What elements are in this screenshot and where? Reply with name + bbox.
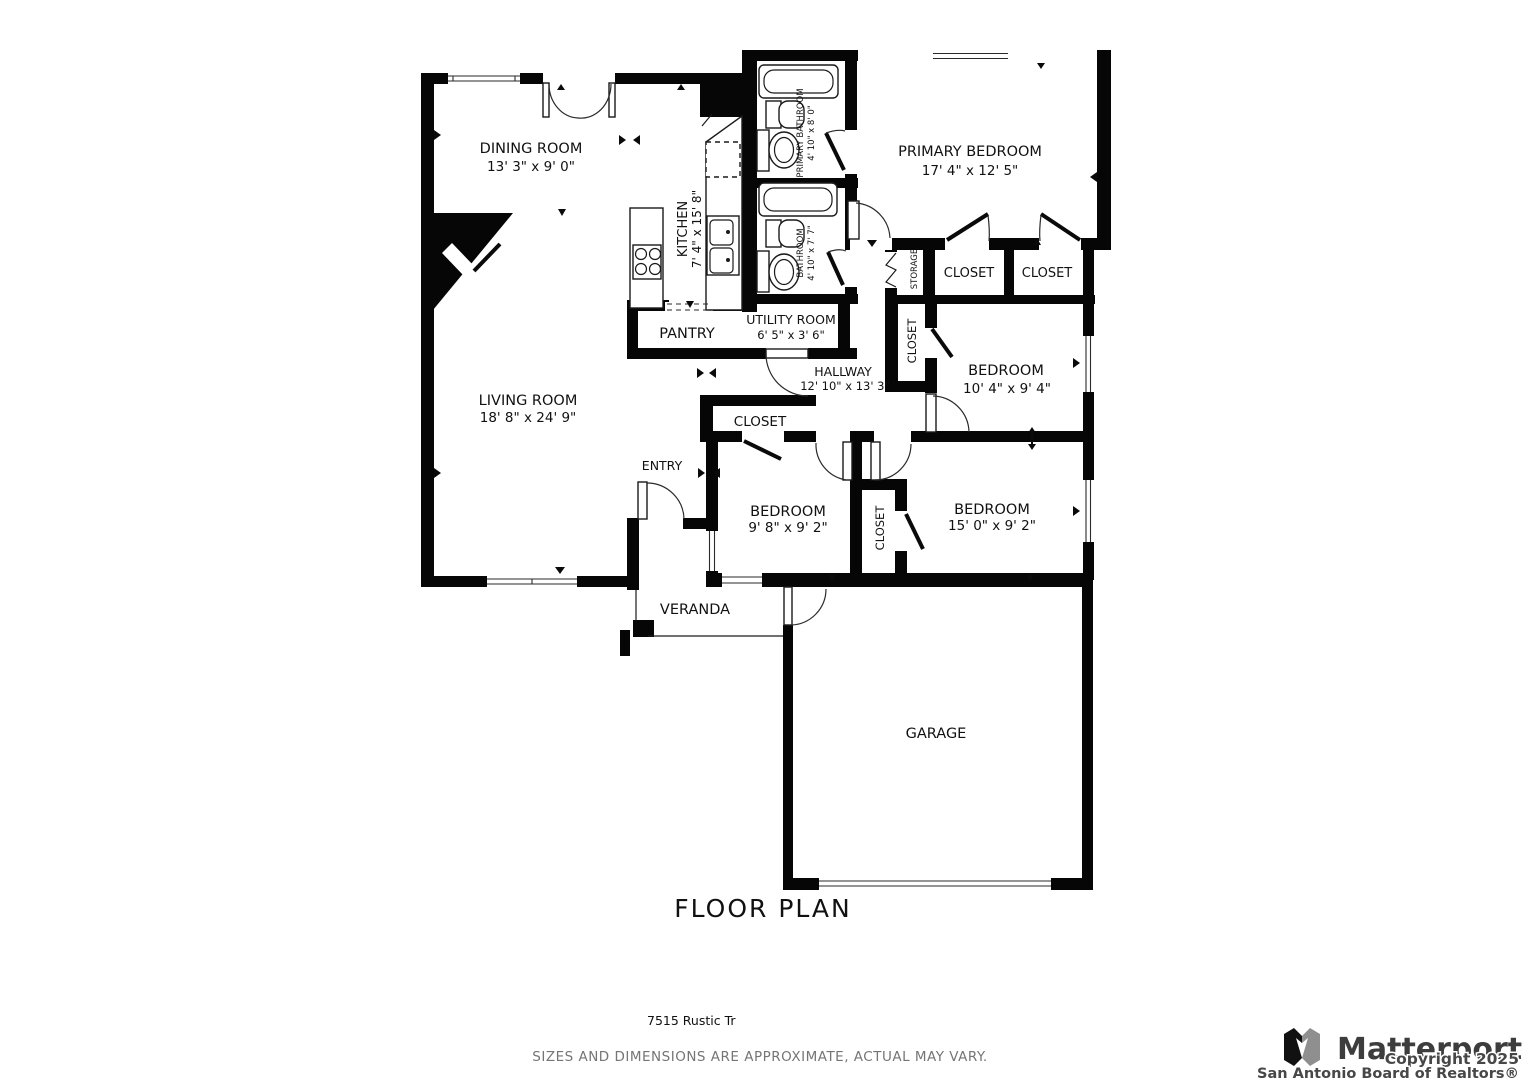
room-label-closet-hallway: CLOSET — [905, 318, 919, 364]
closet-bedrooms-door — [906, 514, 923, 549]
room-label-bedroom3: BEDROOM — [750, 504, 826, 520]
primary-bedroom-door — [848, 201, 890, 239]
primary-toilet-icon — [757, 130, 799, 171]
primary-closet-door-left — [947, 214, 989, 241]
kitchen-counter-left — [630, 208, 663, 308]
dining-double-door — [543, 83, 615, 118]
window-bedroom3-left — [706, 531, 718, 571]
room-label-dining: DINING ROOM — [480, 141, 583, 157]
primary-bathroom-door — [826, 130, 845, 170]
floor-plan-page: DINING ROOM 13' 3" x 9' 0" PRIMARY BEDRO… — [0, 0, 1527, 1080]
room-label-closet-primary-left: CLOSET — [944, 266, 995, 281]
bedroom2-door — [926, 394, 969, 432]
room-dims-hallway: 12' 10" x 13' 3" — [800, 379, 890, 393]
room-label-bathroom: BATHROOM — [796, 228, 806, 277]
room-dims-primary-bedroom: 17' 4" x 12' 5" — [922, 163, 1019, 179]
bedroom3-door — [816, 442, 852, 480]
room-label-hallway: HALLWAY — [814, 364, 872, 379]
bedroom4-door — [871, 442, 911, 480]
room-label-storage-group: STORAGE — [910, 249, 920, 289]
bathroom-door — [828, 250, 846, 285]
room-label-storage: STORAGE — [910, 249, 920, 289]
window-primary-bedroom-top — [933, 50, 1008, 62]
branding: Matterport Copyright 2025 San Antonio Bo… — [1257, 1028, 1522, 1080]
room-label-primary-bathroom-group: PRIMARY BATHROOM 4' 10" x 8' 0" — [796, 88, 817, 177]
room-dims-bedroom2: 10' 4" x 9' 4" — [963, 381, 1051, 397]
page-title: FLOOR PLAN — [674, 894, 851, 923]
room-dims-kitchen: 7' 4" x 15' 8" — [690, 190, 704, 268]
window-bedroom2-right — [1083, 336, 1094, 392]
room-label-closet-hallway-group: CLOSET — [905, 318, 919, 364]
window-dining-top — [448, 73, 520, 84]
room-dims-bedroom4: 15' 0" x 9' 2" — [948, 518, 1036, 534]
room-label-closet-bedrooms: CLOSET — [873, 505, 887, 551]
room-dims-utility: 6' 5" x 3' 6" — [757, 328, 825, 342]
dishwasher-icon — [706, 142, 740, 177]
room-label-garage: GARAGE — [906, 726, 967, 742]
entry-door — [638, 482, 684, 519]
room-label-bedroom4: BEDROOM — [954, 502, 1030, 518]
bathroom-toilet-icon — [757, 251, 799, 292]
room-label-living: LIVING ROOM — [479, 393, 578, 409]
matterport-logo-icon — [1284, 1028, 1320, 1066]
room-label-primary-bathroom: PRIMARY BATHROOM — [796, 88, 806, 177]
room-label-bathroom-group: BATHROOM 4' 10" x 7' 7" — [796, 225, 817, 280]
footer: FLOOR PLAN 7515 Rustic Tr SIZES AND DIME… — [532, 894, 987, 1065]
kitchen-sink-icon — [707, 216, 739, 275]
room-label-pantry: PANTRY — [659, 326, 715, 342]
bathtub-icon — [759, 183, 837, 216]
room-label-kitchen-group: KITCHEN 7' 4" x 15' 8" — [676, 190, 704, 268]
garage-entry-door — [784, 587, 826, 625]
room-dims-bathroom: 4' 10" x 7' 7" — [807, 225, 817, 280]
primary-closet-door-right — [1040, 214, 1080, 241]
closet-entry-door — [744, 441, 781, 459]
room-label-closet-primary-right: CLOSET — [1022, 266, 1073, 281]
room-label-bedroom2: BEDROOM — [968, 363, 1044, 379]
room-label-closet-bedrooms-group: CLOSET — [873, 505, 887, 551]
floor-plan-drawing: DINING ROOM 13' 3" x 9' 0" PRIMARY BEDRO… — [0, 0, 1527, 1080]
room-label-entry: ENTRY — [642, 458, 683, 473]
window-living-bottom — [487, 576, 577, 587]
window-bedroom4-right — [1083, 480, 1094, 542]
room-dims-living: 18' 8" x 24' 9" — [480, 410, 577, 426]
room-label-closet-entry: CLOSET — [734, 414, 787, 430]
room-dims-bedroom3: 9' 8" x 9' 2" — [748, 520, 827, 536]
disclaimer-text: SIZES AND DIMENSIONS ARE APPROXIMATE, AC… — [532, 1049, 987, 1065]
window-bedroom3-bottom — [722, 573, 762, 587]
room-dims-dining: 13' 3" x 9' 0" — [487, 159, 575, 175]
attribution-text: San Antonio Board of Realtors® — [1257, 1066, 1519, 1080]
kitchen-counter-right — [702, 114, 742, 310]
room-dims-primary-bathroom: 4' 10" x 8' 0" — [807, 105, 817, 160]
room-label-primary-bedroom: PRIMARY BEDROOM — [898, 144, 1042, 160]
address-label: 7515 Rustic Tr — [647, 1013, 736, 1028]
room-label-kitchen: KITCHEN — [676, 201, 691, 257]
stove-icon — [633, 245, 661, 279]
room-label-utility: UTILITY ROOM — [746, 312, 836, 327]
room-label-veranda: VERANDA — [660, 602, 730, 618]
